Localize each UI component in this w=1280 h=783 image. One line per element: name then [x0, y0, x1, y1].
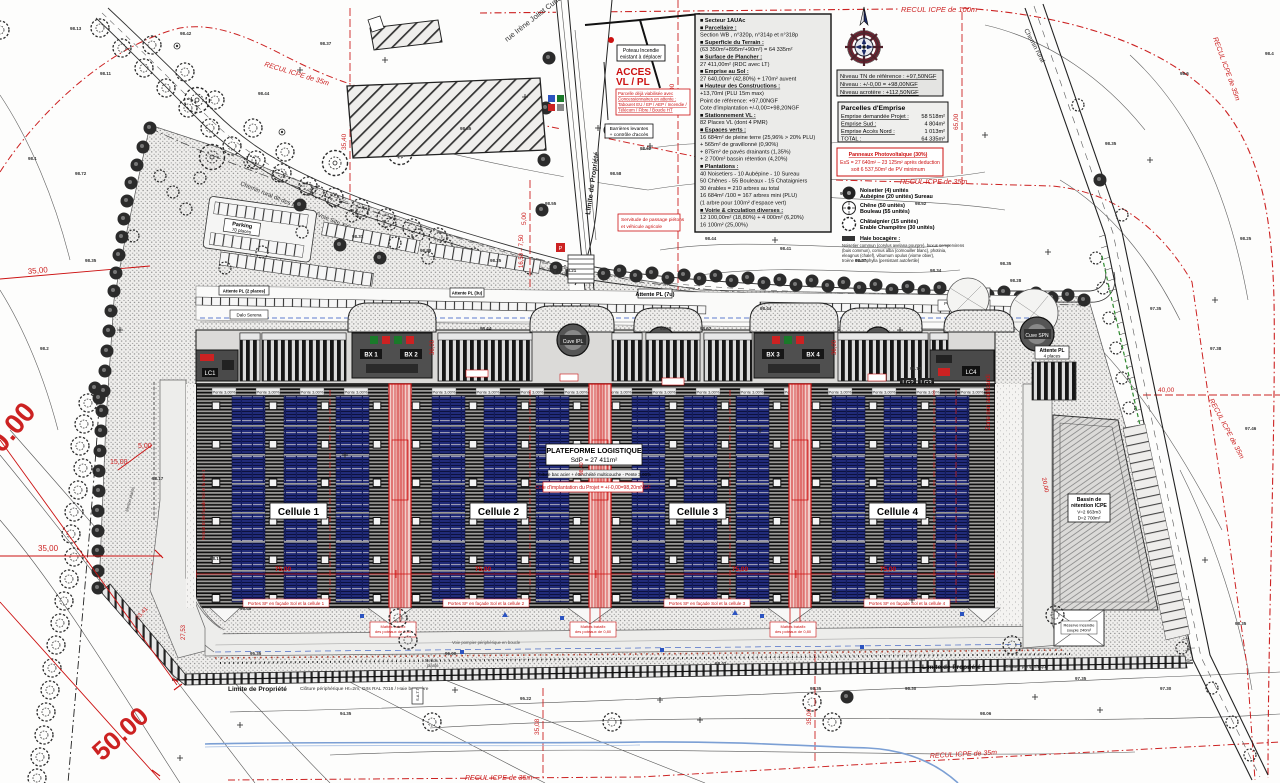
svg-text:94.35: 94.35 — [340, 711, 352, 716]
svg-text:98.06: 98.06 — [980, 711, 992, 716]
svg-text:98.35: 98.35 — [810, 686, 822, 691]
svg-text:Emprise demandée Projet :: Emprise demandée Projet : — [841, 114, 909, 120]
svg-text:des poteaux de 0,80: des poteaux de 0,80 — [375, 629, 412, 634]
svg-text:98.42: 98.42 — [180, 31, 192, 36]
svg-text:98.35: 98.35 — [1000, 261, 1012, 266]
svg-text:98.34: 98.34 — [930, 268, 942, 273]
svg-text:Zone non aedificandi: Zone non aedificandi — [986, 374, 992, 430]
svg-text:■ Hauteur des Constructions :: ■ Hauteur des Constructions : — [700, 84, 780, 90]
svg-text:LC1: LC1 — [204, 371, 216, 377]
svg-text:98.6: 98.6 — [1180, 71, 1189, 76]
svg-text:+ contrôle d'accès: + contrôle d'accès — [610, 132, 649, 138]
svg-text:Niveau TN de référence : +97,5: Niveau TN de référence : +97,50NGF — [840, 74, 937, 80]
svg-text:16,50 – 7,50: 16,50 – 7,50 — [519, 234, 525, 268]
svg-text:Clôture périphérique Ht=2m, Gr: Clôture périphérique Ht=2m, Grts RAL 701… — [300, 686, 429, 692]
svg-text:■ Espaces verts :: ■ Espaces verts : — [700, 128, 746, 134]
svg-text:- Pente 3,00% -: - Pente 3,00% - — [210, 390, 238, 395]
svg-text:+ 2 700m² bassin rétention (4,: + 2 700m² bassin rétention (4,20%) — [700, 157, 788, 163]
svg-text:98.28: 98.28 — [420, 248, 432, 253]
svg-text:Cellule 4: Cellule 4 — [877, 507, 919, 518]
svg-text:98.44: 98.44 — [258, 91, 270, 96]
svg-text:98.15: 98.15 — [210, 556, 222, 561]
svg-text:Cote d'implantation +/-0,00=+9: Cote d'implantation +/-0,00=+98,20NGF — [700, 106, 800, 112]
svg-text:98.35: 98.35 — [1235, 621, 1247, 626]
svg-text:Servitude de passage piétons: Servitude de passage piétons — [621, 217, 685, 223]
svg-text:- Pente 3,00% -: - Pente 3,00% - — [254, 390, 282, 395]
svg-text:Dalo Serena: Dalo Serena — [236, 313, 262, 318]
svg-text:36,00: 36,00 — [430, 339, 436, 355]
svg-text:15,00: 15,00 — [110, 459, 128, 466]
svg-text:97.38: 97.38 — [1210, 346, 1222, 351]
svg-text:98.21: 98.21 — [565, 268, 577, 273]
svg-text:30 érables = 210 arbres au to: 30 érables = 210 arbres au total — [700, 186, 779, 192]
svg-text:- Pente 3,00% -: - Pente 3,00% - — [562, 390, 590, 395]
svg-text:S.A.T.T: S.A.T.T — [415, 687, 420, 701]
svg-text:98.1: 98.1 — [28, 156, 37, 161]
svg-text:RECUL ICPE de 100m: RECUL ICPE de 100m — [901, 5, 977, 14]
svg-text:(1 arbre pour 100m² d'espace v: (1 arbre pour 100m² d'espace vert) — [700, 201, 786, 207]
svg-text:Cellule 3: Cellule 3 — [677, 507, 719, 518]
svg-text:Portes SF en façade Sol et la: Portes SF en façade Sol et la cellule 1 — [248, 601, 325, 606]
svg-text:Emprise Sud :: Emprise Sud : — [841, 122, 877, 128]
svg-text:Retrait Bt de façade Sol et la: Retrait Bt de façade Sol et la vole 1 — [201, 469, 206, 540]
svg-text:des poteaux de 0,80: des poteaux de 0,80 — [775, 629, 812, 634]
svg-text:98.25: 98.25 — [490, 258, 502, 263]
svg-text:EsS = 27 640m² – 23 125m² aprè: EsS = 27 640m² – 23 125m² après deductio… — [840, 160, 940, 166]
svg-text:■ Plantations :: ■ Plantations : — [700, 164, 739, 170]
svg-text:Niveau acrotère : +112,50NGF: Niveau acrotère : +112,50NGF — [840, 90, 919, 96]
svg-text:98.13: 98.13 — [70, 26, 82, 31]
svg-text:5,00: 5,00 — [521, 212, 528, 225]
svg-text:98,40: 98,40 — [579, 462, 585, 475]
svg-text:- Pente 3,00% -: - Pente 3,00% - — [738, 390, 766, 395]
svg-text:V=2 663m3: V=2 663m3 — [1077, 510, 1101, 515]
svg-text:Attente PL (2 places): Attente PL (2 places) — [223, 289, 266, 294]
svg-text:98.4: 98.4 — [1265, 51, 1274, 56]
svg-text:98.41: 98.41 — [780, 246, 792, 251]
svg-text:98.55: 98.55 — [460, 126, 472, 131]
svg-text:Aubépine (20 unités) Sureau: Aubépine (20 unités) Sureau — [860, 194, 933, 200]
svg-text:- Pente 3,00% -: - Pente 3,00% - — [914, 390, 942, 395]
svg-text:TOTAL :: TOTAL : — [841, 137, 862, 143]
svg-text:P: P — [559, 246, 563, 252]
svg-text:36,00: 36,00 — [832, 339, 838, 355]
svg-text:98.62: 98.62 — [640, 146, 652, 151]
svg-text:■ Superficie du Terrain :: ■ Superficie du Terrain : — [700, 40, 764, 46]
svg-text:97.30: 97.30 — [1160, 686, 1172, 691]
svg-text:96.00: 96.00 — [445, 651, 457, 656]
svg-text:95.35: 95.35 — [250, 651, 262, 656]
svg-text:Poteau Incendie: Poteau Incendie — [623, 48, 659, 54]
svg-text:98.44: 98.44 — [705, 236, 717, 241]
svg-text:98.11: 98.11 — [100, 71, 112, 76]
svg-text:Erable Champêtre (30 unités): Erable Champêtre (30 unités) — [860, 225, 935, 231]
svg-text:98.44: 98.44 — [760, 306, 772, 311]
svg-text:VL / PL: VL / PL — [616, 77, 650, 88]
svg-text:troène macrophylla (persistant: troène macrophylla (persistant autoferti… — [842, 258, 920, 263]
svg-text:82 Places VL (dont 4 PMR): 82 Places VL (dont 4 PMR) — [700, 120, 768, 126]
svg-text:27 640,00m² (42,80%) + 170m² a: 27 640,00m² (42,80%) + 170m² auvent — [700, 76, 797, 82]
svg-text:PLATEFORME LOGISTIQUE: PLATEFORME LOGISTIQUE — [546, 446, 642, 455]
svg-text:- Pente 3,00% -: - Pente 3,00% - — [474, 390, 502, 395]
svg-text:Bouleau (55 unités): Bouleau (55 unités) — [860, 209, 910, 215]
svg-text:98.72: 98.72 — [910, 366, 922, 371]
svg-text:- Pente 3,00% -: - Pente 3,00% - — [694, 390, 722, 395]
svg-text:35,00: 35,00 — [27, 265, 48, 276]
svg-text:Voie pompier périphérique en b: Voie pompier périphérique en boucle — [452, 640, 521, 645]
svg-text:- Pente 3,00% -: - Pente 3,00% - — [430, 390, 458, 395]
svg-text:40,00: 40,00 — [1158, 387, 1175, 394]
svg-text:(63 350m²+895m²+90m²) = 64 335: (63 350m²+895m²+90m²) = 64 335m² — [700, 47, 793, 53]
svg-text:98.35: 98.35 — [1105, 141, 1117, 146]
svg-text:Parcelle déjà viabilisée avec: Parcelle déjà viabilisée avec — [618, 91, 674, 96]
svg-text:■ Emprise au Sol :: ■ Emprise au Sol : — [700, 69, 749, 75]
svg-text:SdP = 27 411m²: SdP = 27 411m² — [571, 457, 618, 464]
svg-text:Concessionnaires en attente :: Concessionnaires en attente : — [618, 97, 676, 102]
svg-text:- Pente 3,00% -: - Pente 3,00% - — [298, 390, 326, 395]
svg-text:98.28: 98.28 — [1010, 278, 1022, 283]
svg-text:16 684m² /100 = 167 arbres min: 16 684m² /100 = 167 arbres mini (PLU) — [700, 193, 797, 199]
svg-text:98.30: 98.30 — [905, 686, 917, 691]
svg-text:98.37: 98.37 — [320, 41, 332, 46]
svg-text:BX 4: BX 4 — [806, 353, 820, 359]
svg-text:BX 3: BX 3 — [766, 353, 780, 359]
svg-text:Cuve SPN: Cuve SPN — [1025, 333, 1049, 339]
svg-text:- Pente 3,00% -: - Pente 3,00% - — [826, 390, 854, 395]
svg-text:98.25: 98.25 — [1240, 236, 1252, 241]
svg-text:- Pente 3,00% -: - Pente 3,00% - — [958, 390, 986, 395]
svg-text:4 804m²: 4 804m² — [924, 122, 945, 128]
svg-text:+ 565m² de gravillonné (0,90%): + 565m² de gravillonné (0,90%) — [700, 142, 778, 148]
svg-text:BX 1: BX 1 — [364, 353, 378, 359]
svg-text:rétention ICPE: rétention ICPE — [1071, 503, 1107, 509]
svg-text:40 Noisetiers - 10 Aubépine -: 40 Noisetiers - 10 Aubépine - 10 Sureau — [700, 171, 800, 177]
svg-text:Télécom / Fibre / Boucle HT: Télécom / Fibre / Boucle HT — [618, 108, 673, 113]
svg-text:existant à déplacer: existant à déplacer — [620, 55, 662, 61]
svg-text:97.35: 97.35 — [1075, 676, 1087, 681]
svg-text:98.31: 98.31 — [352, 234, 364, 239]
svg-text:98.72: 98.72 — [75, 171, 87, 176]
svg-text:35,40: 35,40 — [341, 133, 348, 150]
svg-text:Parcelles d'Emprise: Parcelles d'Emprise — [841, 105, 906, 112]
svg-text:des poteaux de 0,80: des poteaux de 0,80 — [575, 629, 612, 634]
svg-text:98.58: 98.58 — [610, 171, 622, 176]
svg-text:■ Voirie & circulation diverse: ■ Voirie & circulation diverses : — [700, 208, 783, 214]
svg-text:Point de référence: +97,00NGF: Point de référence: +97,00NGF — [700, 98, 778, 104]
svg-text:Cote d'implantation du Projet: Cote d'implantation du Projet = +/-0,00=… — [535, 485, 651, 491]
svg-text:98.52: 98.52 — [915, 201, 927, 206]
svg-text:Portes SF en façade Sol et la: Portes SF en façade Sol et la cellule 4 — [869, 601, 946, 606]
svg-text:Portes SF en façade Sol et la: Portes SF en façade Sol et la cellule 3 — [669, 601, 746, 606]
svg-text:97.46: 97.46 — [1245, 426, 1257, 431]
svg-text:58 518m²: 58 518m² — [921, 114, 945, 120]
svg-text:Tabouret EU / EP / AEP / Incen: Tabouret EU / EP / AEP / Incendie / — [618, 102, 687, 107]
svg-text:BX 2: BX 2 — [404, 353, 418, 359]
svg-text:4 places: 4 places — [1044, 354, 1062, 359]
svg-text:Panneaux Photovoltaïque (30%): Panneaux Photovoltaïque (30%) — [849, 152, 928, 158]
svg-text:95.22: 95.22 — [520, 696, 532, 701]
svg-text:98.40: 98.40 — [660, 326, 672, 331]
svg-text:Toiture bac acier + étanchéité: Toiture bac acier + étanchéité multicouc… — [537, 472, 651, 477]
svg-text:98.42: 98.42 — [715, 661, 727, 666]
svg-text:- Pente 3,00% -: - Pente 3,00% - — [870, 390, 898, 395]
svg-text:Portes SF en façade Sol et la: Portes SF en façade Sol et la cellule 2 — [448, 601, 525, 606]
svg-text:+13,70ml (PLU 15m max): +13,70ml (PLU 15m max) — [700, 91, 764, 97]
svg-text:planté: planté — [427, 663, 439, 668]
svg-text:Emprise Accès Nord :: Emprise Accès Nord : — [841, 129, 895, 135]
svg-text:Clôture périphérique: Clôture périphérique — [1005, 664, 1049, 670]
svg-text:35,08: 35,08 — [534, 718, 541, 735]
svg-text:LC4: LC4 — [965, 370, 977, 376]
svg-text:Haie bocagère :: Haie bocagère : — [860, 236, 900, 242]
svg-text:■ Stationnement VL :: ■ Stationnement VL : — [700, 113, 756, 119]
svg-text:Section WB , n°320p, n°314p et: Section WB , n°320p, n°314p et n°318p — [700, 33, 798, 39]
svg-text:98.55: 98.55 — [545, 201, 557, 206]
svg-text:5,00: 5,00 — [138, 443, 152, 450]
svg-text:Cuve IPL: Cuve IPL — [563, 339, 584, 345]
svg-text:+ 875m² de pavés drainants (1,: + 875m² de pavés drainants (1,35%) — [700, 149, 791, 155]
svg-text:D=2 700m²: D=2 700m² — [1078, 516, 1101, 521]
svg-text:98.48: 98.48 — [240, 606, 252, 611]
svg-text:RECUL ICPE de 35m: RECUL ICPE de 35m — [900, 179, 967, 186]
svg-text:1 013m²: 1 013m² — [924, 129, 945, 135]
svg-text:35,00: 35,00 — [38, 544, 59, 553]
svg-text:Limite de Propriété: Limite de Propriété — [228, 686, 287, 693]
svg-text:98.44: 98.44 — [480, 326, 492, 331]
svg-text:97.35: 97.35 — [1150, 306, 1162, 311]
svg-text:98.2: 98.2 — [40, 346, 49, 351]
svg-text:souple 240m³: souple 240m³ — [1067, 628, 1092, 633]
svg-text:- Pente 3,00% -: - Pente 3,00% - — [650, 390, 678, 395]
svg-text:■ Surface de Plancher :: ■ Surface de Plancher : — [700, 55, 762, 61]
svg-text:98.17: 98.17 — [152, 476, 164, 481]
svg-text:27,53: 27,53 — [181, 624, 187, 640]
svg-text:soit 6 537,50m² de PV minimum: soit 6 537,50m² de PV minimum — [851, 167, 925, 173]
svg-text:■ Secteur 1AUAc: ■ Secteur 1AUAc — [700, 18, 745, 24]
svg-text:Attente PL (3u): Attente PL (3u) — [452, 291, 483, 296]
svg-text:- Pente 3,00% -: - Pente 3,00% - — [342, 390, 370, 395]
svg-text:64 335m²: 64 335m² — [921, 137, 945, 143]
svg-text:50 Chênes - 55 Bouleaux - 15 C: 50 Chênes - 55 Bouleaux - 15 Chataignier… — [700, 179, 807, 185]
svg-text:- Pente 3,00% -: - Pente 3,00% - — [518, 390, 546, 395]
svg-text:12 100,00m² (18,80%) + 4 000m²: 12 100,00m² (18,80%) + 4 000m² (6,20%) — [700, 215, 804, 221]
svg-text:Cellule 2: Cellule 2 — [478, 507, 520, 518]
svg-text:Attente PL (7u): Attente PL (7u) — [635, 292, 674, 298]
svg-text:98.35: 98.35 — [85, 258, 97, 263]
svg-text:■ Parcellaire :: ■ Parcellaire : — [700, 25, 737, 31]
svg-text:Cellule 1: Cellule 1 — [278, 507, 320, 518]
svg-text:16 684m² de pleine terre (25,9: 16 684m² de pleine terre (25,96% > 20% P… — [700, 135, 815, 141]
svg-text:Niveau : +/-0,00 = +98,00NGF: Niveau : +/-0,00 = +98,00NGF — [840, 82, 918, 88]
svg-text:98.62: 98.62 — [700, 326, 712, 331]
svg-text:et véhicule agricole: et véhicule agricole — [621, 224, 662, 230]
svg-text:Limite de Propriété: Limite de Propriété — [922, 664, 981, 671]
svg-text:16 100m² (25,00%): 16 100m² (25,00%) — [700, 222, 748, 228]
svg-text:Barrières levantes: Barrières levantes — [610, 126, 649, 132]
svg-text:65,00: 65,00 — [953, 113, 960, 130]
svg-text:RECUL ICPE de 35m: RECUL ICPE de 35m — [465, 775, 532, 782]
svg-text:27 411,00m² (RDC avec LT): 27 411,00m² (RDC avec LT) — [700, 62, 770, 68]
